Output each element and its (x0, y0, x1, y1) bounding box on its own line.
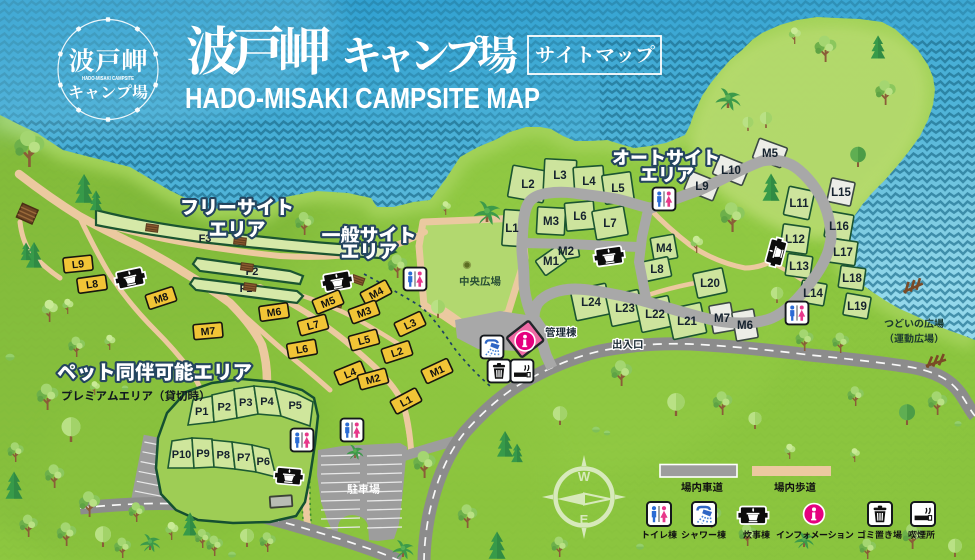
svg-text:L8: L8 (85, 278, 99, 292)
svg-text:L11: L11 (789, 198, 809, 210)
svg-text:P2: P2 (218, 401, 231, 413)
svg-text:L10: L10 (721, 165, 741, 177)
svg-text:P1: P1 (195, 406, 208, 418)
svg-text:L17: L17 (833, 247, 853, 259)
svg-text:P6: P6 (257, 456, 270, 468)
svg-text:P10: P10 (172, 449, 192, 461)
svg-text:L21: L21 (677, 316, 697, 328)
svg-text:L18: L18 (842, 273, 862, 285)
svg-text:M7: M7 (200, 325, 216, 338)
svg-text:M6: M6 (266, 306, 282, 320)
svg-text:P9: P9 (196, 448, 209, 460)
svg-text:L12: L12 (785, 234, 805, 246)
svg-text:L14: L14 (803, 288, 823, 300)
svg-text:HADO-MISAKI CAMPSITE MAP: HADO-MISAKI CAMPSITE MAP (185, 83, 540, 115)
svg-text:L1: L1 (505, 223, 519, 235)
svg-text:L6: L6 (573, 211, 586, 223)
svg-text:L8: L8 (650, 264, 664, 276)
svg-text:M1: M1 (543, 256, 560, 268)
svg-text:L23: L23 (615, 303, 635, 315)
svg-text:M5: M5 (762, 148, 779, 160)
svg-text:M7: M7 (714, 313, 730, 325)
svg-text:P3: P3 (239, 397, 252, 409)
svg-text:L13: L13 (789, 261, 809, 273)
svg-text:L7: L7 (603, 218, 616, 230)
svg-text:L3: L3 (553, 170, 566, 182)
svg-text:L19: L19 (847, 301, 867, 313)
svg-text:P4: P4 (260, 396, 274, 408)
svg-text:HADO-MISAKI CAMPSITE: HADO-MISAKI CAMPSITE (82, 76, 135, 82)
svg-text:P7: P7 (237, 452, 250, 464)
svg-text:M3: M3 (543, 216, 559, 228)
svg-text:W: W (578, 469, 591, 484)
svg-text:M2: M2 (558, 246, 574, 258)
svg-text:L4: L4 (582, 176, 596, 188)
svg-text:L15: L15 (831, 187, 851, 199)
svg-text:L5: L5 (611, 183, 625, 195)
svg-text:P8: P8 (217, 450, 230, 462)
svg-text:M4: M4 (656, 243, 673, 255)
svg-text:P5: P5 (288, 400, 301, 412)
svg-text:M6: M6 (737, 320, 753, 332)
svg-text:L9: L9 (71, 258, 85, 271)
svg-text:L22: L22 (645, 309, 665, 321)
svg-text:L20: L20 (700, 278, 720, 290)
svg-text:L24: L24 (581, 297, 601, 309)
svg-text:E: E (580, 512, 589, 527)
svg-text:L16: L16 (829, 221, 849, 233)
svg-text:L6: L6 (295, 343, 309, 357)
svg-text:L2: L2 (521, 179, 534, 191)
svg-text:L9: L9 (695, 181, 708, 193)
